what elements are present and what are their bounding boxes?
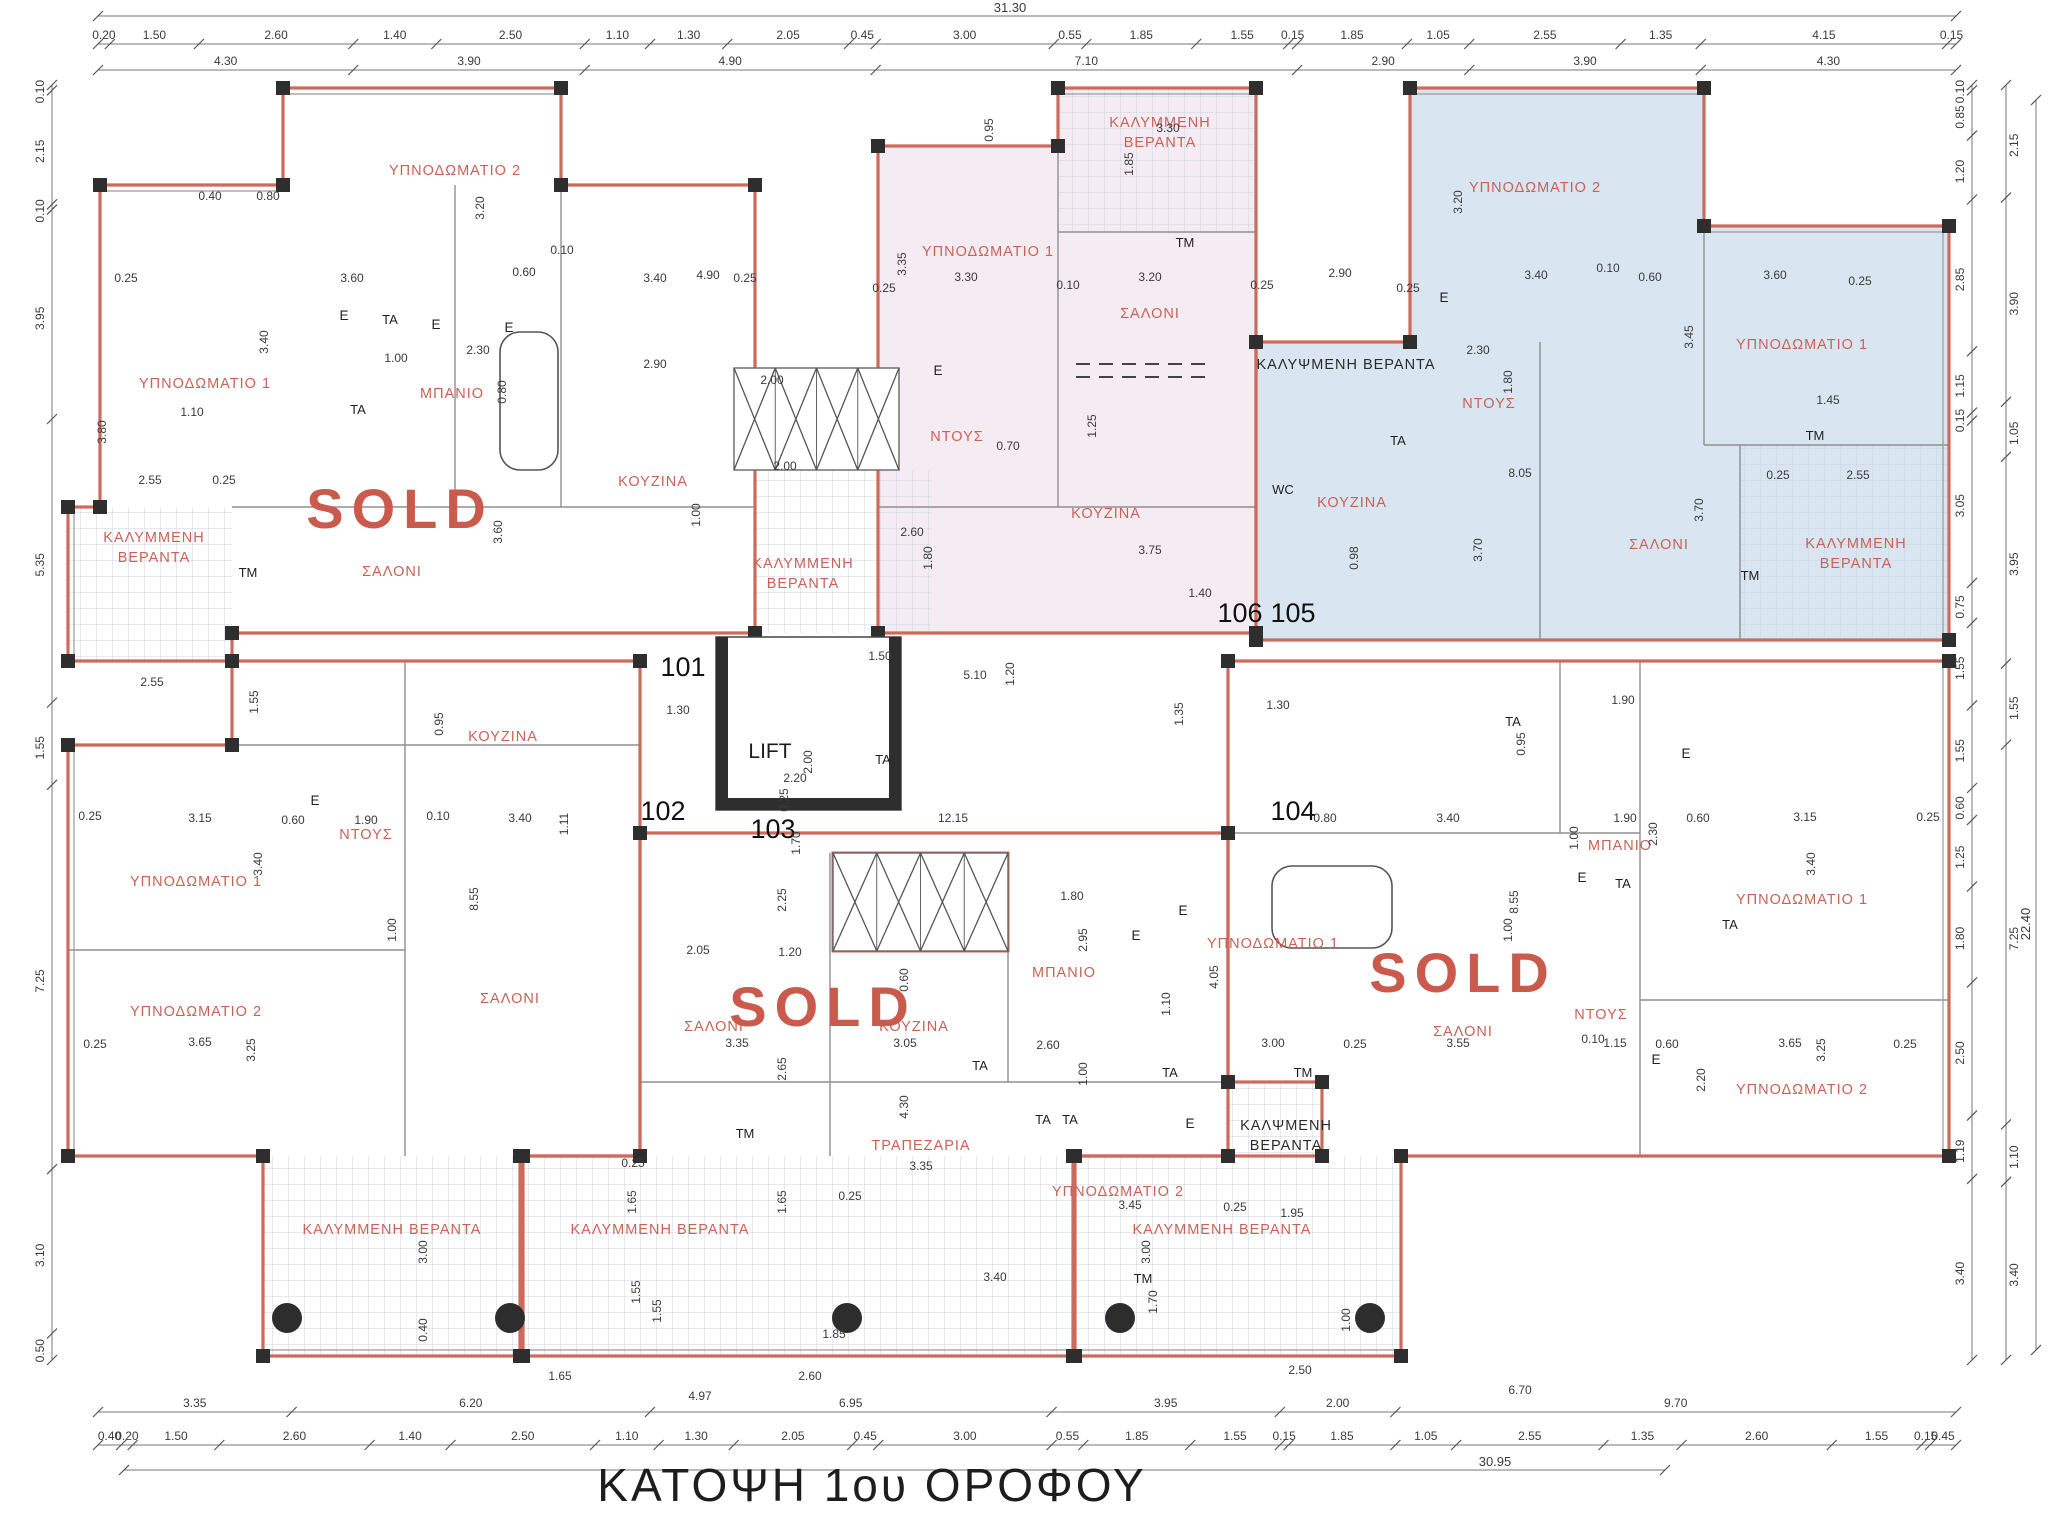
fixture-label: E (504, 320, 513, 335)
dim-chain-label: 1.55 (1231, 28, 1255, 42)
dim-label: 3.35 (725, 1036, 749, 1050)
dim-label: 1.55 (650, 1299, 664, 1323)
floor-plan-page: LIFTΥΠΝΟΔΩΜΑΤΙΟ 2ΥΠΝΟΔΩΜΑΤΙΟ 1ΚΑΛΥΜΜΕΝΗΒ… (0, 0, 2048, 1536)
room-label: ΚΑΛΨΜΕΝΗ (1240, 1118, 1332, 1134)
fixture-label: E (1178, 903, 1187, 918)
dim-label: 2.90 (1328, 266, 1352, 280)
dim-chain-label: 1.40 (383, 28, 407, 42)
dim-chain-label: 2.55 (1533, 28, 1557, 42)
dim-chain-label: 1.55 (1953, 739, 1967, 763)
dim-chain-label: 0.20 (115, 1429, 139, 1443)
dim-chain-label: 0.60 (1953, 796, 1967, 820)
column (1355, 1303, 1385, 1333)
dim-label: 0.25 (621, 1156, 645, 1170)
dim-label: 4.30 (897, 1095, 911, 1119)
dim-label: 1.00 (689, 503, 703, 527)
dim-chain-label: 1.05 (1426, 28, 1450, 42)
room-label: ΣΑΛΟΝΙ (480, 991, 540, 1007)
dim-chain-label: 6.95 (839, 1396, 863, 1410)
veranda-grid (1058, 88, 1256, 232)
dim-chain-label: 1.05 (2007, 421, 2021, 445)
dim-chain-label: 0.10 (33, 199, 47, 223)
dim-chain-label: 4.30 (1817, 54, 1841, 68)
dim-label: 0.25 (872, 281, 896, 295)
dim-label: 1.55 (629, 1280, 643, 1304)
dim-label: 2.00 (801, 750, 815, 774)
dim-label: 0.95 (1514, 732, 1528, 756)
fixture-label: TA (1062, 1112, 1078, 1127)
dim-chain-label: 3.90 (1573, 54, 1597, 68)
dim-label: 1.45 (1816, 393, 1840, 407)
dim-label: 2.60 (900, 525, 924, 539)
column (495, 1303, 525, 1333)
dim-label: 1.00 (1339, 1308, 1353, 1332)
fixture-label: TM (1294, 1065, 1313, 1080)
dim-label: 2.60 (798, 1369, 822, 1383)
fixture-label: TM (1741, 568, 1760, 583)
room-label: ΚΟΥΖΙΝΑ (468, 729, 538, 745)
dim-chain-label: 1.50 (164, 1429, 188, 1443)
dim-label: 0.10 (1581, 1032, 1605, 1046)
dim-chain-label: 1.10 (606, 28, 630, 42)
dim-chain-label: 3.35 (183, 1396, 207, 1410)
room-label: ΤΡΑΠΕΖΑΡΙΑ (871, 1138, 970, 1154)
dim-label: 0.25 (1766, 468, 1790, 482)
dim-label: 0.60 (1686, 811, 1710, 825)
sold-label: SOLD (729, 975, 917, 1038)
dim-label: 0.25 (78, 809, 102, 823)
veranda-grid (523, 1156, 1073, 1356)
dim-label: 3.70 (1471, 538, 1485, 562)
dim-label: 4.97 (688, 1389, 712, 1403)
dim-chain-label: 1.10 (615, 1429, 639, 1443)
dim-label: 0.25 (1343, 1037, 1367, 1051)
plan-title: ΚΑΤΟΨΗ 1ου ΟΡΟΦΟΥ (552, 1458, 1192, 1512)
dim-label: 0.25 (1396, 281, 1420, 295)
fixture-label: E (1439, 290, 1448, 305)
dim-label: 2.65 (775, 1057, 789, 1081)
fixture-label: TA (1615, 876, 1631, 891)
dim-label: 1.90 (1613, 811, 1637, 825)
dim-label: 3.65 (1778, 1036, 1802, 1050)
room-label: ΣΑΛΟΝΙ (362, 564, 422, 580)
dim-chain-label: 1.30 (677, 28, 701, 42)
dim-chain-label: 3.10 (33, 1243, 47, 1267)
dim-label: 1.80 (1060, 889, 1084, 903)
fixture-label: TA (1722, 917, 1738, 932)
dim-label: 0.25 (838, 1189, 862, 1203)
dim-chain-label: 1.55 (33, 736, 47, 760)
fixture-label: TM (1176, 235, 1195, 250)
dim-chain-label: 2.15 (33, 139, 47, 163)
dim-chain-label: 2.90 (1371, 54, 1395, 68)
room-label: ΝΤΟΥΣ (1462, 396, 1516, 412)
fixture-label: TA (350, 402, 366, 417)
room-label: ΒΕΡΑΝΤΑ (1820, 556, 1893, 572)
dim-chain-label: 4.30 (214, 54, 238, 68)
dim-label: 1.90 (354, 813, 378, 827)
dim-label: 3.15 (188, 811, 212, 825)
dim-chain-label: 0.55 (1058, 28, 1082, 42)
dim-chain-label: 2.60 (283, 1429, 307, 1443)
dim-label: 3.60 (1763, 268, 1787, 282)
dim-chain-label: 2.55 (1518, 1429, 1542, 1443)
dim-label: 2.30 (1466, 343, 1490, 357)
room-label: ΜΠΑΝΙΟ (1588, 838, 1652, 854)
dim-chain-label: 7.25 (33, 969, 47, 993)
dim-chain-label: 1.15 (1953, 374, 1967, 398)
dim-label: 8.05 (1508, 466, 1532, 480)
dim-label: 3.70 (1692, 498, 1706, 522)
dim-chain-label: 1.55 (2007, 696, 2021, 720)
dim-chain-label: 3.40 (2007, 1263, 2021, 1287)
fixture-label: E (1131, 928, 1140, 943)
dim-label: 0.25 (212, 473, 236, 487)
room-label: ΥΠΝΟΔΩΜΑΤΙΟ 2 (130, 1004, 262, 1020)
dim-label: 0.10 (1056, 278, 1080, 292)
dim-label: 1.10 (1159, 992, 1173, 1016)
dim-label: 1.00 (385, 918, 399, 942)
dim-chain-label: 0.15 (1953, 409, 1967, 433)
floor-plan-drawing: LIFTΥΠΝΟΔΩΜΑΤΙΟ 2ΥΠΝΟΔΩΜΑΤΙΟ 1ΚΑΛΥΜΜΕΝΗΒ… (0, 0, 2048, 1536)
dim-total-label: 31.30 (994, 0, 1027, 15)
room-label: ΚΟΥΖΙΝΑ (1071, 506, 1141, 522)
fixture-label: E (339, 308, 348, 323)
dim-label: 0.25 (1893, 1037, 1917, 1051)
dim-chain-label: 2.15 (2007, 133, 2021, 157)
dim-label: 3.30 (1156, 121, 1180, 135)
dim-chain-label: 1.25 (1953, 845, 1967, 869)
dim-chain-label: 1.55 (1865, 1429, 1889, 1443)
dim-chain-label: 1.05 (1414, 1429, 1438, 1443)
room-label: ΝΤΟΥΣ (930, 429, 984, 445)
dim-label: 3.40 (508, 811, 532, 825)
dim-label: 0.60 (512, 265, 536, 279)
dim-label: 1.95 (1280, 1206, 1304, 1220)
dim-chain-label: 2.05 (776, 28, 800, 42)
veranda-grid (263, 1156, 520, 1356)
dim-chain-label: 0.10 (33, 80, 47, 104)
dim-chain-label: 3.95 (2007, 552, 2021, 576)
dim-label: 1.65 (625, 1190, 639, 1214)
dim-chain-label: 6.20 (459, 1396, 483, 1410)
dim-label: 1.30 (1266, 698, 1290, 712)
dim-label: 3.55 (1446, 1036, 1470, 1050)
room-label: ΥΠΝΟΔΩΜΑΤΙΟ 2 (1736, 1082, 1868, 1098)
room-label: ΣΑΛΟΝΙ (1629, 537, 1689, 553)
room-label: ΥΠΝΟΔΩΜΑΤΙΟ 1 (130, 874, 262, 890)
dim-chain-label: 1.40 (398, 1429, 422, 1443)
room-label: ΚΑΛΥΜΜΕΝΗ (752, 556, 853, 572)
dim-label: 2.20 (1694, 1068, 1708, 1092)
dim-chain-label: 1.85 (1130, 28, 1154, 42)
dim-chain-label: 0.75 (1953, 595, 1967, 619)
dim-label: 3.00 (416, 1240, 430, 1264)
dim-chain-label: 2.50 (499, 28, 523, 42)
dim-label: 2.55 (140, 675, 164, 689)
room-label: ΥΠΝΟΔΩΜΑΤΙΟ 1 (1736, 892, 1868, 908)
dim-label: 0.25 (1223, 1200, 1247, 1214)
dim-chain-label: 3.90 (457, 54, 481, 68)
dim-label: 1.00 (384, 351, 408, 365)
dim-label: 3.35 (909, 1159, 933, 1173)
room-label: ΚΑΛΥΨΜΕΝΗ ΒΕΡΑΝΤΑ (1257, 357, 1436, 373)
dim-label: 1.25 (1085, 414, 1099, 438)
dim-label: 1.15 (1603, 1036, 1627, 1050)
dim-label: 1.00 (1076, 1062, 1090, 1086)
dim-label: 1.10 (180, 405, 204, 419)
dim-label: 0.60 (281, 813, 305, 827)
lift-label: LIFT (748, 740, 791, 763)
dim-chain-label: 1.35 (1631, 1429, 1655, 1443)
room-label: ΒΕΡΑΝΤΑ (767, 576, 840, 592)
unit-number: 104 (1270, 796, 1315, 826)
dim-label: 3.40 (257, 330, 271, 354)
dim-label: 1.00 (1567, 826, 1581, 850)
dim-label: 1.85 (1122, 152, 1136, 176)
fixture-label: TM (1134, 1271, 1153, 1286)
dim-label: 3.45 (1682, 325, 1696, 349)
dim-label: 3.40 (1804, 852, 1818, 876)
fixture-label: TM (1806, 428, 1825, 443)
dim-label: 1.65 (775, 1190, 789, 1214)
dim-label: 0.70 (996, 439, 1020, 453)
dim-label: 3.60 (340, 271, 364, 285)
fixture-label: TM (239, 565, 258, 580)
dim-label: 0.10 (550, 243, 574, 257)
room-label: ΥΠΝΟΔΩΜΑΤΙΟ 2 (389, 163, 521, 179)
dim-label: 1.80 (921, 546, 935, 570)
fixture-label: WC (1272, 482, 1294, 497)
fixture-label: E (1185, 1116, 1194, 1131)
dim-label: 0.10 (426, 809, 450, 823)
unit-number: 101 (660, 652, 705, 682)
dim-label: 12.15 (938, 811, 968, 825)
dim-total-label: 30.95 (1479, 1454, 1512, 1469)
dim-label: 1.85 (822, 1327, 846, 1341)
dim-label: 1.65 (548, 1369, 572, 1383)
dim-chain-label: 7.10 (1075, 54, 1099, 68)
unit-number: 102 (640, 796, 685, 826)
dim-label: 4.90 (696, 268, 720, 282)
room-label: ΚΑΛΥΜΜΕΝΗ ΒΕΡΑΝΤΑ (1133, 1222, 1312, 1238)
fixture-label: E (1651, 1052, 1660, 1067)
dim-label: 3.20 (473, 196, 487, 220)
dim-label: 0.60 (1655, 1037, 1679, 1051)
dim-label: 3.15 (1793, 810, 1817, 824)
dim-label: 1.70 (789, 831, 803, 855)
dim-label: 2.00 (773, 459, 797, 473)
sold-label: SOLD (1369, 941, 1557, 1004)
fixture-label: E (1681, 746, 1690, 761)
room-label: ΚΟΥΖΙΝΑ (1317, 495, 1387, 511)
dim-total-label: 22.40 (2018, 908, 2033, 941)
dim-label: 6.70 (1508, 1383, 1532, 1397)
dim-label: 3.80 (95, 420, 109, 444)
dim-chain-label: 3.95 (33, 306, 47, 330)
room-label: ΒΕΡΑΝΤΑ (1250, 1138, 1323, 1154)
room-label: ΥΠΝΟΔΩΜΑΤΙΟ 1 (922, 244, 1054, 260)
dim-label: 2.00 (760, 373, 784, 387)
dim-chain-label: 0.45 (854, 1429, 878, 1443)
dim-chain-label: 3.05 (1953, 494, 1967, 518)
room-label: ΒΕΡΑΝΤΑ (1124, 135, 1197, 151)
dim-chain-label: 2.50 (1953, 1041, 1967, 1065)
dim-label: 0.25 (1250, 278, 1274, 292)
dim-chain-label: 3.00 (953, 1429, 977, 1443)
dim-label: 8.55 (1507, 890, 1521, 914)
dim-chain-label: 3.95 (1154, 1396, 1178, 1410)
dim-label: 0.25 (83, 1037, 107, 1051)
dim-label: 1.00 (1501, 918, 1515, 942)
dim-chain-label: 1.20 (1953, 160, 1967, 184)
fixture-label: TA (875, 752, 891, 767)
dim-label: 0.60 (897, 968, 911, 992)
dim-label: 2.55 (138, 473, 162, 487)
dim-label: 3.40 (643, 271, 667, 285)
room-label: ΝΤΟΥΣ (339, 827, 393, 843)
dim-label: 2.25 (775, 888, 789, 912)
dim-label: 1.40 (1188, 586, 1212, 600)
dim-label: 3.65 (188, 1035, 212, 1049)
dim-chain-label: 4.15 (1812, 28, 1836, 42)
dim-label: 1.50 (868, 649, 892, 663)
dim-chain-label: 2.60 (264, 28, 288, 42)
dim-chain-label: 3.40 (1953, 1261, 1967, 1285)
dim-label: 0.80 (495, 380, 509, 404)
dim-label: 3.75 (1138, 543, 1162, 557)
room-label: ΥΠΝΟΔΩΜΑΤΙΟ 1 (139, 376, 271, 392)
dim-label: 3.00 (1139, 1240, 1153, 1264)
dim-label: 3.40 (1524, 268, 1548, 282)
room-label: ΚΟΥΖΙΝΑ (618, 474, 688, 490)
dim-label: 2.30 (466, 343, 490, 357)
room-label: ΚΑΛΥΜΜΕΝΗ ΒΕΡΑΝΤΑ (303, 1222, 482, 1238)
dim-chain-label: 0.85 (1953, 105, 1967, 129)
fixture-label: TA (1505, 714, 1521, 729)
dim-chain-label: 0.50 (33, 1339, 47, 1363)
dim-label: 1.35 (1172, 702, 1186, 726)
dim-chain-label: 2.50 (511, 1429, 535, 1443)
room-label: ΥΠΝΟΔΩΜΑΤΙΟ 1 (1736, 337, 1868, 353)
dim-label: 1.11 (557, 812, 571, 835)
dim-label: 1.30 (666, 703, 690, 717)
room-label: ΜΠΑΝΙΟ (1032, 965, 1096, 981)
dim-label: 0.95 (432, 712, 446, 736)
dim-label: 0.40 (198, 189, 222, 203)
dim-label: 1.20 (1003, 662, 1017, 686)
dim-label: 0.80 (256, 189, 280, 203)
dim-chain-label: 0.10 (1953, 80, 1967, 104)
dim-label: 1.55 (247, 690, 261, 714)
dim-label: 3.40 (251, 852, 265, 876)
dim-label: 3.20 (1451, 190, 1465, 214)
dim-chain-label: 9.70 (1664, 1396, 1688, 1410)
dim-label: 0.10 (1596, 261, 1620, 275)
room-label: ΥΠΝΟΔΩΜΑΤΙΟ 2 (1469, 180, 1601, 196)
veranda-grid (755, 470, 930, 633)
dim-chain-label: 0.45 (851, 28, 875, 42)
dim-chain-label: 2.60 (1745, 1429, 1769, 1443)
dim-label: 2.05 (686, 943, 710, 957)
dim-label: 3.35 (895, 252, 909, 276)
dim-label: 2.95 (1076, 928, 1090, 952)
room-label: ΚΑΛΥΜΜΕΝΗ ΒΕΡΑΝΤΑ (571, 1222, 750, 1238)
fixture-label: E (431, 317, 440, 332)
dim-label: 8.55 (467, 887, 481, 911)
fixture-label: TM (736, 1126, 755, 1141)
dim-label: 3.05 (893, 1036, 917, 1050)
dim-chain-label: 2.85 (1953, 267, 1967, 291)
dim-chain-label: 5.35 (33, 553, 47, 577)
dim-chain-label: 2.05 (781, 1429, 805, 1443)
dim-chain-label: 0.20 (92, 28, 116, 42)
room-label: ΒΕΡΑΝΤΑ (118, 550, 191, 566)
dim-label: 0.25 (733, 271, 757, 285)
fixture-label: E (310, 793, 319, 808)
room-label: ΣΑΛΟΝΙ (1120, 306, 1180, 322)
dim-chain-label: 1.30 (684, 1429, 708, 1443)
dim-chain-label: 1.35 (1649, 28, 1673, 42)
dim-label: 2.90 (643, 357, 667, 371)
fixture-label: TA (1390, 433, 1406, 448)
column (272, 1303, 302, 1333)
dim-label: 2.60 (1036, 1038, 1060, 1052)
dim-chain-label: 3.00 (953, 28, 977, 42)
fixture-label: TA (382, 312, 398, 327)
fixture-label: TA (972, 1058, 988, 1073)
fixture-label: TA (1162, 1065, 1178, 1080)
dim-label: 2.30 (1646, 822, 1660, 846)
dim-label: 0.80 (1313, 811, 1337, 825)
dim-label: 3.25 (244, 1038, 258, 1062)
dim-chain-label: 1.85 (1125, 1429, 1149, 1443)
dim-label: 3.45 (1118, 1198, 1142, 1212)
dim-label: 3.25 (1814, 1038, 1828, 1062)
dim-label: 3.20 (1138, 270, 1162, 284)
dim-label: 0.25 (114, 271, 138, 285)
dim-label: 3.40 (983, 1270, 1007, 1284)
dim-label: 3.40 (1436, 811, 1460, 825)
dim-chain-label: 3.90 (2007, 292, 2021, 316)
dim-label: 0.40 (416, 1318, 430, 1342)
dim-chain-label: 2.00 (1326, 1396, 1350, 1410)
dim-label: 0.25 (1916, 810, 1940, 824)
dim-label: 2.55 (1846, 468, 1870, 482)
unit-number: 106 (1217, 598, 1262, 628)
unit-number: 105 (1270, 598, 1315, 628)
dim-label: 3.30 (954, 270, 978, 284)
fixture-label: E (933, 363, 942, 378)
dim-chain-label: 1.55 (1953, 656, 1967, 680)
dim-chain-label: 4.90 (719, 54, 743, 68)
dim-label: 3.00 (1261, 1036, 1285, 1050)
dim-label: 5.10 (963, 668, 987, 682)
room-label: ΥΠΝΟΔΩΜΑΤΙΟ 1 (1207, 936, 1339, 952)
room-label: ΚΑΛΥΜΜΕΝΗ (1805, 536, 1906, 552)
fixture-label: E (1577, 870, 1586, 885)
dim-label: 1.80 (1501, 370, 1515, 394)
room-label: ΝΤΟΥΣ (1574, 1007, 1628, 1023)
dim-chain-label: 0.45 (1931, 1429, 1955, 1443)
dim-chain-label: 1.19 (1953, 1139, 1967, 1163)
dim-label: 1.90 (1611, 693, 1635, 707)
dim-chain-label: 1.80 (1953, 926, 1967, 950)
dim-chain-label: 1.85 (1340, 28, 1364, 42)
fixture-label: TA (1035, 1112, 1051, 1127)
dim-label: 1.20 (778, 945, 802, 959)
dim-chain-label: 1.85 (1330, 1429, 1354, 1443)
